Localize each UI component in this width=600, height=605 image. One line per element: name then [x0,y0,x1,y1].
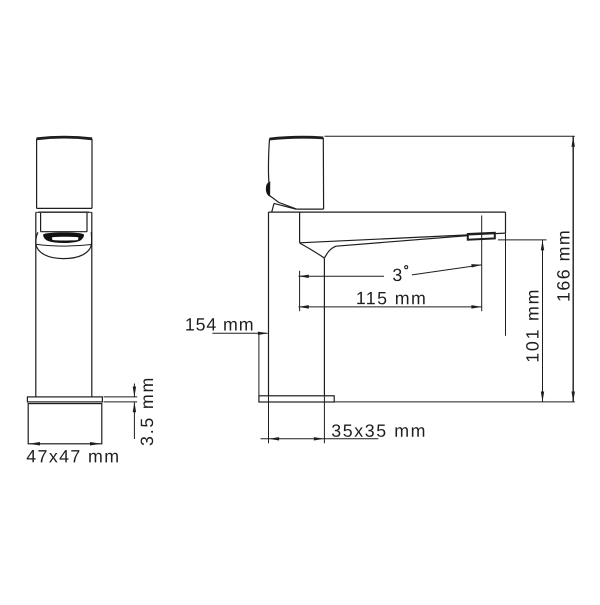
svg-text:35x35 mm: 35x35 mm [331,421,427,441]
svg-text:3.5 mm: 3.5 mm [137,376,157,446]
svg-text:101 mm: 101 mm [523,288,543,363]
svg-text:154 mm: 154 mm [185,314,255,334]
svg-text:47x47 mm: 47x47 mm [26,446,120,466]
svg-text:166 mm: 166 mm [554,229,574,302]
svg-text:3: 3 [392,265,403,285]
svg-text:115 mm: 115 mm [356,288,427,308]
